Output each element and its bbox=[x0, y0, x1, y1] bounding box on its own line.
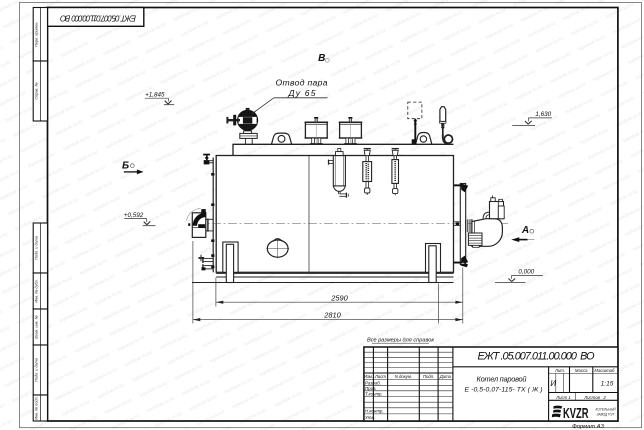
svg-text:Все размеры для справок: Все размеры для справок bbox=[367, 338, 434, 344]
svg-text:ЕЖТ .05.007.011.00.000 ВО: ЕЖТ .05.007.011.00.000 ВО bbox=[60, 13, 136, 22]
svg-text:И: И bbox=[550, 379, 556, 388]
svg-text:0,000: 0,000 bbox=[518, 268, 534, 275]
svg-text:Инв. № дубл.: Инв. № дубл. bbox=[34, 279, 38, 302]
svg-text:Изм.: Изм. bbox=[364, 374, 373, 379]
svg-text:1:15: 1:15 bbox=[601, 381, 614, 388]
svg-text:А: А bbox=[521, 225, 529, 236]
svg-text:Т.контр.: Т.контр. bbox=[365, 392, 383, 397]
svg-text:Перв. примен.: Перв. примен. bbox=[34, 22, 38, 47]
svg-text:Ду 65: Ду 65 bbox=[288, 88, 316, 98]
svg-text:ЗАВОД РЭТ: ЗАВОД РЭТ bbox=[597, 413, 616, 417]
svg-text:KVZR: KVZR bbox=[563, 405, 589, 422]
svg-text:Е -0,5-0,07-115- ТХ ( Ж ): Е -0,5-0,07-115- ТХ ( Ж ) bbox=[465, 387, 543, 394]
svg-text:Н.контр.: Н.контр. bbox=[365, 409, 384, 414]
svg-text:2810: 2810 bbox=[323, 311, 341, 320]
svg-text:Лист 1: Лист 1 bbox=[555, 395, 571, 400]
svg-text:Лист: Лист bbox=[374, 374, 386, 379]
svg-text:2590: 2590 bbox=[330, 294, 348, 303]
svg-text:Масса: Масса bbox=[575, 368, 588, 373]
svg-text:ЕЖТ .05.007.011.00.000 ВО: ЕЖТ .05.007.011.00.000 ВО bbox=[478, 351, 596, 363]
svg-text:Формат А3: Формат А3 bbox=[572, 424, 604, 430]
svg-text:Подп. и дата: Подп. и дата bbox=[34, 236, 38, 260]
svg-text:КОТЕЛЬНЫЙ: КОТЕЛЬНЫЙ bbox=[596, 408, 617, 412]
svg-text:Дата: Дата bbox=[439, 374, 452, 379]
svg-text:+0,592: +0,592 bbox=[124, 212, 144, 219]
svg-text:Утв.: Утв. bbox=[365, 415, 375, 420]
svg-text:В: В bbox=[318, 53, 325, 64]
svg-text:Взам. инв. №: Взам. инв. № bbox=[34, 315, 38, 338]
svg-text:1,630: 1,630 bbox=[535, 111, 551, 118]
svg-text:Разраб.: Разраб. bbox=[365, 380, 381, 385]
svg-text:Отвод пара: Отвод пара bbox=[276, 78, 328, 88]
svg-text:Листов 2: Листов 2 bbox=[583, 395, 606, 400]
svg-text:Пров.: Пров. bbox=[365, 386, 377, 391]
svg-text:Котел паровой: Котел паровой bbox=[477, 374, 527, 383]
svg-text:N докум.: N докум. bbox=[395, 374, 412, 379]
svg-text:+1,845: +1,845 bbox=[145, 92, 165, 99]
svg-text:Справ. №: Справ. № bbox=[34, 82, 38, 99]
svg-text:Инв. № подл.: Инв. № подл. bbox=[34, 396, 38, 420]
svg-text:Лит.: Лит. bbox=[554, 368, 565, 373]
svg-text:Б: Б bbox=[122, 161, 129, 172]
svg-text:Подп. и дата: Подп. и дата bbox=[34, 358, 38, 382]
svg-text:Масштаб: Масштаб bbox=[594, 368, 615, 373]
svg-text:Подп.: Подп. bbox=[423, 374, 434, 379]
